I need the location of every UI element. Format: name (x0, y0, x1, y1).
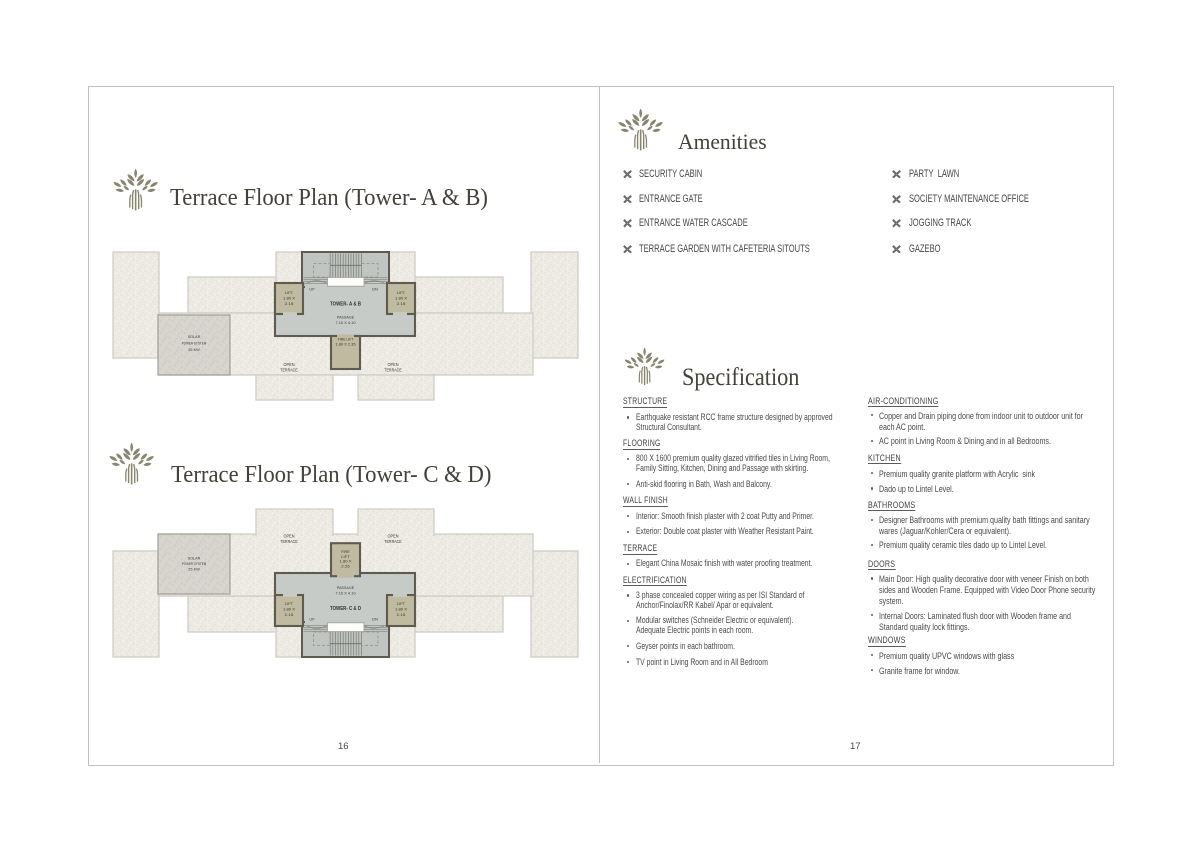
svg-text:LIFT: LIFT (397, 601, 406, 606)
svg-text:UP: UP (309, 618, 315, 622)
svg-text:TERRACE: TERRACE (280, 539, 298, 544)
svg-text:7.10 X 4.10: 7.10 X 4.10 (336, 591, 357, 596)
svg-text:7.10 X 4.10: 7.10 X 4.10 (336, 320, 357, 325)
svg-text:POWER SYSTEM: POWER SYSTEM (182, 341, 207, 346)
svg-text:LIFT: LIFT (285, 601, 294, 606)
svg-text:2.15: 2.15 (397, 301, 406, 306)
svg-text:25 KW: 25 KW (188, 347, 200, 352)
svg-text:SOLAR: SOLAR (188, 556, 201, 561)
svg-text:DN: DN (372, 618, 378, 622)
svg-text:OPEN: OPEN (388, 362, 399, 367)
svg-text:2.15: 2.15 (285, 301, 294, 306)
svg-text:2.26: 2.26 (341, 563, 350, 568)
svg-text:TOWER- A & B: TOWER- A & B (330, 302, 361, 308)
svg-text:1.80 X: 1.80 X (283, 607, 295, 612)
svg-text:25 KW: 25 KW (188, 567, 200, 572)
svg-text:LIFT: LIFT (285, 290, 294, 295)
svg-text:UP: UP (309, 288, 315, 292)
svg-text:PASSAGE: PASSAGE (337, 585, 355, 590)
svg-text:2.15: 2.15 (397, 612, 406, 617)
svg-text:PASSAGE: PASSAGE (337, 315, 355, 320)
svg-text:2.15: 2.15 (285, 612, 294, 617)
svg-text:OPEN: OPEN (284, 534, 295, 539)
svg-text:SOLAR: SOLAR (188, 334, 201, 339)
svg-text:TERRACE: TERRACE (280, 368, 298, 373)
svg-text:OPEN: OPEN (388, 534, 399, 539)
svg-text:TOWER- C & D: TOWER- C & D (330, 606, 361, 612)
svg-text:1.80 X: 1.80 X (283, 296, 295, 301)
svg-text:LIFT: LIFT (397, 290, 406, 295)
svg-text:1.80 X: 1.80 X (395, 296, 407, 301)
svg-text:1.80 X 2.35: 1.80 X 2.35 (336, 342, 356, 347)
svg-text:TERRACE: TERRACE (384, 539, 402, 544)
svg-text:DN: DN (372, 288, 378, 292)
svg-text:OPEN: OPEN (284, 362, 295, 367)
svg-text:1.80 X: 1.80 X (395, 607, 407, 612)
svg-text:POWER SYSTEM: POWER SYSTEM (182, 561, 207, 566)
svg-text:TERRACE: TERRACE (384, 368, 402, 373)
